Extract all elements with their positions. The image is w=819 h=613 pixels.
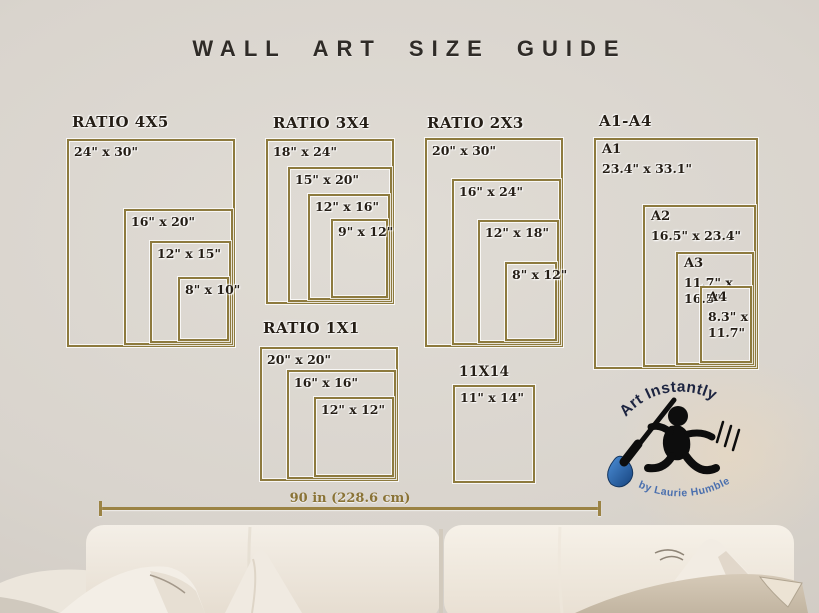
page-title: WALL ART SIZE GUIDE xyxy=(0,36,819,62)
size-label: 12" x 12" xyxy=(316,399,392,418)
size-label: 16" x 16" xyxy=(289,372,394,391)
group-label-2x3: RATIO 2X3 xyxy=(427,114,524,132)
group-label-1x1: RATIO 1X1 xyxy=(263,319,360,337)
wall-art-size-guide-photo: WALL ART SIZE GUIDE RATIO 4X5 24" x 30" … xyxy=(0,0,819,613)
size-box-9x12: 9" x 12" xyxy=(331,219,388,298)
size-label: 11" x 14" xyxy=(455,387,533,406)
size-label: 20" x 20" xyxy=(262,349,396,368)
size-label: 8.3" x 11.7" xyxy=(702,306,750,340)
couch xyxy=(0,513,819,613)
group-label-3x4: RATIO 3X4 xyxy=(273,114,370,132)
logo-arc-text: Art Instantly xyxy=(616,379,719,420)
art-instantly-logo: Art Instantly by Laurie Humble xyxy=(590,378,770,508)
logo-byline-text: by Laurie Humble xyxy=(637,475,732,500)
size-label: 8" x 12" xyxy=(507,264,555,283)
size-label: 16" x 20" xyxy=(126,211,231,230)
size-label: 12" x 15" xyxy=(152,243,229,262)
size-label: 12" x 18" xyxy=(480,222,557,241)
size-label: 23.4" x 33.1" xyxy=(596,158,756,177)
size-label: 20" x 30" xyxy=(427,140,561,159)
measurement-line xyxy=(99,507,601,510)
size-box-11x14: 11" x 14" xyxy=(453,385,535,483)
measurement-label: 90 in (228.6 cm) xyxy=(100,491,600,506)
size-label: 24" x 30" xyxy=(69,141,233,160)
size-name: A3 xyxy=(678,254,752,272)
size-box-12x12: 12" x 12" xyxy=(314,397,394,477)
speed-lines-icon xyxy=(717,422,739,450)
group-label-a-series: A1-A4 xyxy=(599,112,652,130)
size-name: A1 xyxy=(596,140,756,158)
group-label-11x14: 11X14 xyxy=(459,364,510,380)
size-label: 9" x 12" xyxy=(333,221,386,240)
size-label: 8" x 10" xyxy=(180,279,227,298)
size-label: 16" x 24" xyxy=(454,181,559,200)
size-box-8x10: 8" x 10" xyxy=(178,277,229,341)
running-artist-figure-icon xyxy=(648,406,716,470)
size-box-a4: A4 8.3" x 11.7" xyxy=(700,286,752,363)
size-label: 12" x 16" xyxy=(310,196,388,215)
size-label: 18" x 24" xyxy=(268,141,392,160)
cushion-seam xyxy=(439,529,443,613)
size-label: 15" x 20" xyxy=(290,169,390,188)
size-label: 16.5" x 23.4" xyxy=(645,225,754,244)
size-name: A2 xyxy=(645,207,754,225)
size-box-8x12: 8" x 12" xyxy=(505,262,557,341)
size-name: A4 xyxy=(702,288,750,306)
group-label-4x5: RATIO 4X5 xyxy=(72,113,169,131)
